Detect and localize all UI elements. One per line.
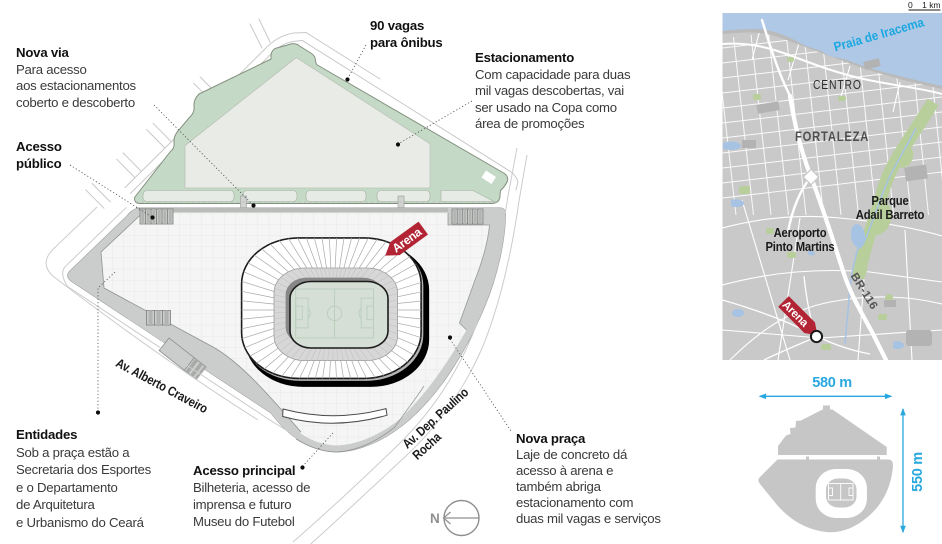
svg-text:N: N bbox=[430, 511, 440, 526]
